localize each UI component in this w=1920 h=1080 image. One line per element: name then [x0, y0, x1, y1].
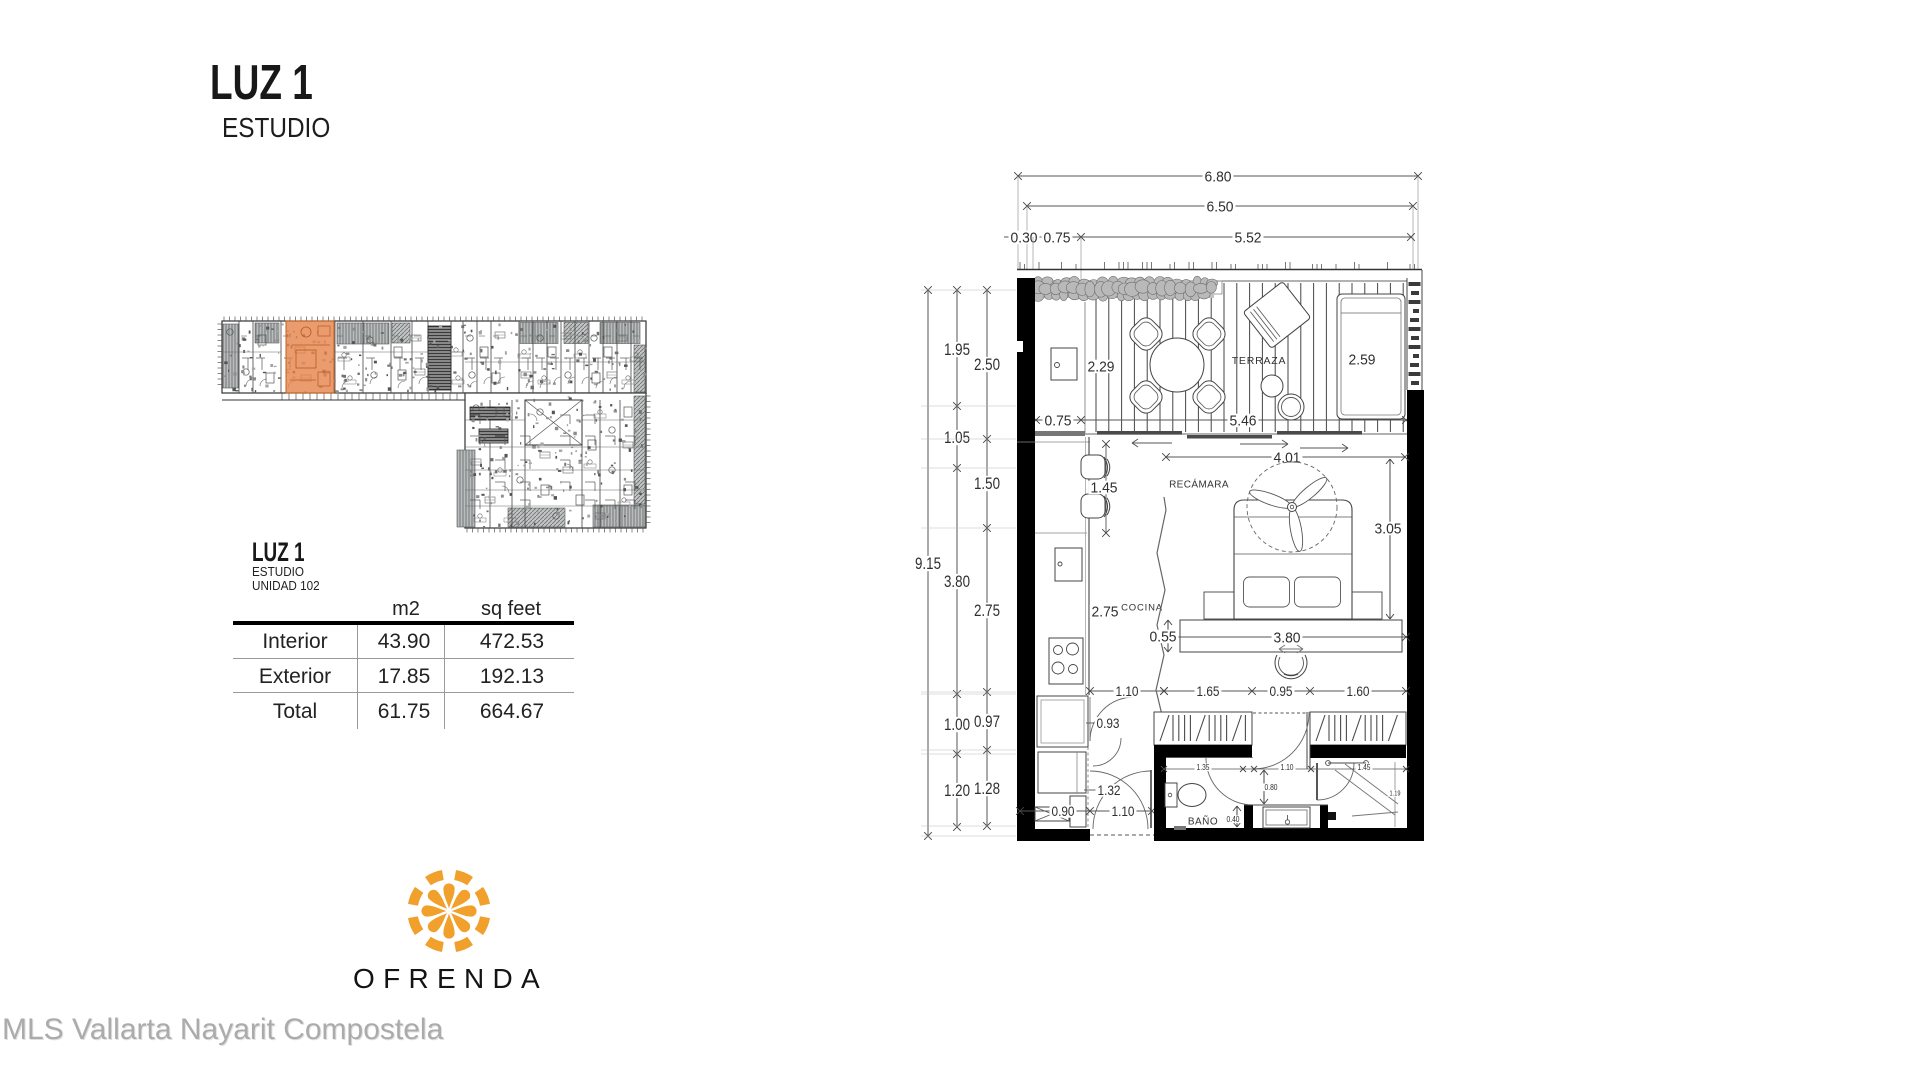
svg-text:1.95: 1.95 [944, 340, 970, 359]
svg-text:2.59: 2.59 [1349, 351, 1376, 368]
svg-text:BAÑO: BAÑO [1188, 815, 1218, 828]
svg-text:2.50: 2.50 [974, 355, 1000, 374]
svg-text:1.32: 1.32 [1098, 782, 1121, 798]
svg-text:2.29: 2.29 [1088, 358, 1115, 375]
svg-text:1.19: 1.19 [1390, 789, 1401, 798]
svg-text:0.90: 0.90 [1052, 803, 1075, 819]
svg-text:1.60: 1.60 [1347, 683, 1370, 699]
svg-text:RECÁMARA: RECÁMARA [1169, 478, 1229, 491]
svg-text:0.40: 0.40 [1227, 814, 1240, 824]
svg-text:1.10: 1.10 [1116, 683, 1139, 699]
svg-text:COCINA: COCINA [1121, 602, 1163, 613]
svg-text:0.75: 0.75 [1045, 412, 1072, 429]
svg-text:1.50: 1.50 [974, 474, 1000, 493]
svg-text:3.80: 3.80 [1274, 629, 1301, 646]
svg-text:9.15: 9.15 [915, 554, 941, 573]
svg-text:0.30: 0.30 [1011, 229, 1038, 246]
svg-text:1.45: 1.45 [1358, 762, 1371, 772]
svg-text:6.50: 6.50 [1207, 198, 1234, 215]
svg-text:1.65: 1.65 [1197, 683, 1220, 699]
svg-text:1.00: 1.00 [944, 715, 970, 734]
svg-text:0.75: 0.75 [1044, 229, 1071, 246]
svg-text:TERRAZA: TERRAZA [1232, 355, 1287, 367]
svg-text:0.80: 0.80 [1265, 782, 1278, 792]
svg-text:1.20: 1.20 [944, 781, 970, 800]
svg-text:5.46: 5.46 [1230, 412, 1257, 429]
svg-text:2.75: 2.75 [1092, 603, 1119, 620]
svg-text:6.80: 6.80 [1205, 168, 1232, 185]
svg-text:1.10: 1.10 [1281, 762, 1294, 772]
svg-text:1.28: 1.28 [974, 779, 1000, 798]
svg-text:0.55: 0.55 [1150, 628, 1177, 645]
svg-text:1.10: 1.10 [1112, 803, 1135, 819]
svg-text:1.35: 1.35 [1197, 762, 1210, 772]
svg-text:0.97: 0.97 [974, 712, 1000, 731]
svg-text:2.75: 2.75 [974, 601, 1000, 620]
svg-text:0.95: 0.95 [1270, 683, 1293, 699]
svg-text:5.52: 5.52 [1235, 229, 1262, 246]
svg-text:4.01: 4.01 [1274, 449, 1301, 466]
svg-text:1.45: 1.45 [1091, 479, 1118, 496]
svg-text:1.05: 1.05 [944, 428, 970, 447]
svg-text:0.93: 0.93 [1097, 715, 1120, 731]
svg-text:3.80: 3.80 [944, 572, 970, 591]
svg-text:3.05: 3.05 [1375, 520, 1402, 537]
